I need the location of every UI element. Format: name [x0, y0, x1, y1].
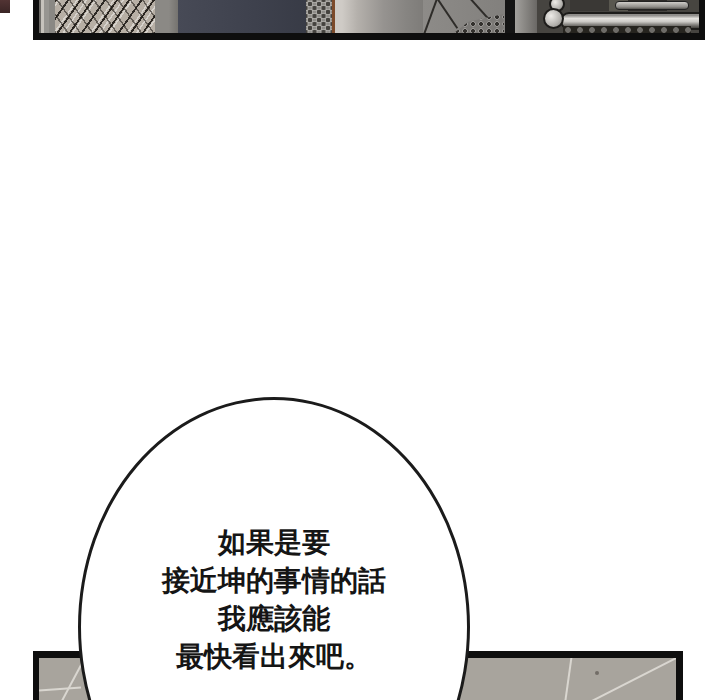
- pipe-base-bolts: [563, 26, 691, 33]
- riveted-slope-art: [423, 0, 505, 33]
- bubble-line: 最快看出來吧。: [81, 638, 467, 676]
- spiked-wall-art: [55, 0, 155, 33]
- upper-pipe: [615, 1, 689, 10]
- pipe-endcap: [543, 8, 564, 29]
- wall-corner-art: [39, 0, 55, 33]
- wall-gap-art: [155, 0, 178, 33]
- speech-bubble: 如果是要 接近坤的事情的話 我應該能 最快看出來吧。: [78, 397, 470, 700]
- pipe-rack-art: [515, 0, 699, 33]
- pipe-rack-post: [515, 0, 537, 33]
- bubble-line: 如果是要: [81, 524, 467, 562]
- speech-bubble-text: 如果是要 接近坤的事情的話 我應該能 最快看出來吧。: [81, 524, 467, 676]
- rivet-dots: [454, 14, 504, 33]
- perforated-metal-art: [306, 0, 332, 33]
- floor-speck: [595, 671, 599, 675]
- panel-divider: [505, 0, 515, 33]
- top-left-art-fragment: [0, 0, 10, 13]
- shaded-post-art: [335, 0, 423, 33]
- slope-line: [433, 0, 458, 29]
- bubble-line: 接近坤的事情的話: [81, 562, 467, 600]
- dark-partition-art: [178, 0, 306, 33]
- comic-page: 如果是要 接近坤的事情的話 我應該能 最快看出來吧。: [0, 0, 720, 700]
- tile-seam: [590, 651, 683, 700]
- tile-seam: [39, 687, 81, 692]
- tile-seam: [563, 652, 573, 700]
- top-panel: [33, 0, 705, 40]
- slope-line: [423, 0, 438, 33]
- bubble-line: 我應該能: [81, 600, 467, 638]
